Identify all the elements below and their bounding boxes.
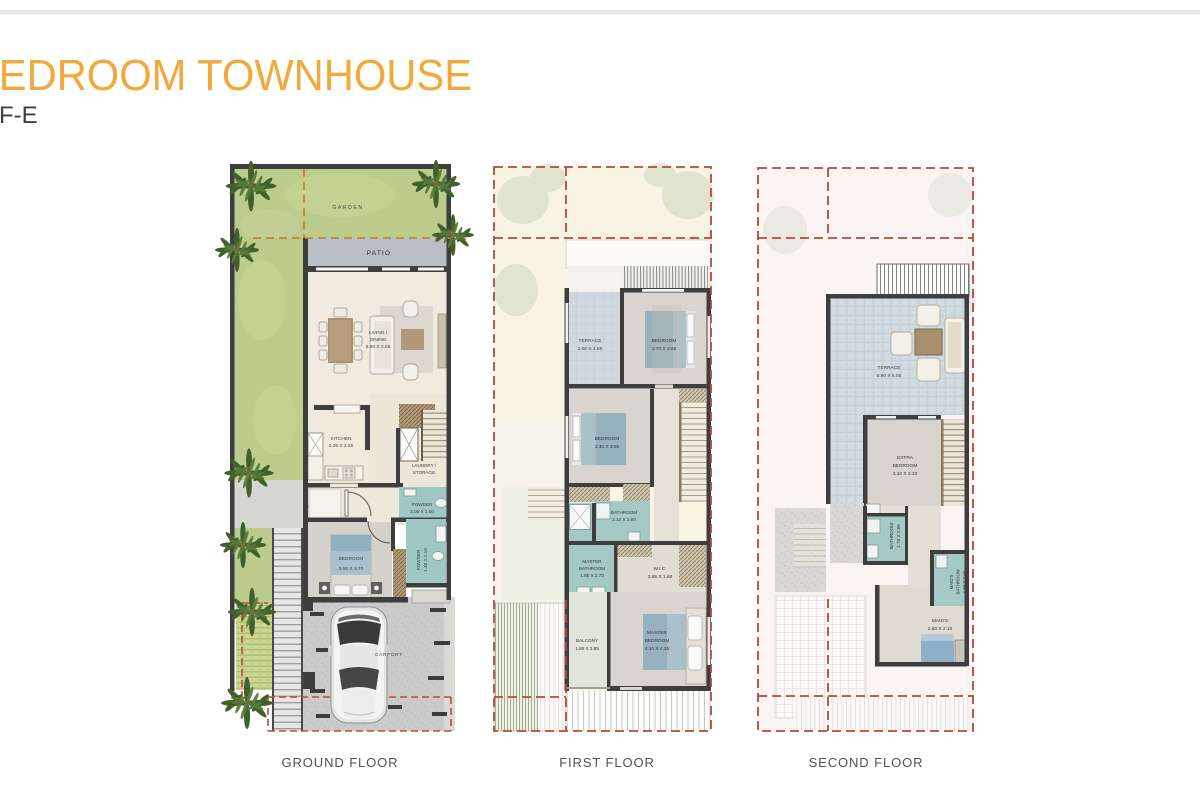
svg-text:BATHROOM: BATHROOM — [956, 569, 961, 594]
svg-text:TERRACE: TERRACE — [579, 338, 602, 344]
svg-text:BALCONY: BALCONY — [576, 638, 598, 643]
svg-text:EXTRA: EXTRA — [897, 455, 914, 461]
svg-text:MASTER: MASTER — [647, 630, 668, 636]
svg-text:STORAGE: STORAGE — [413, 470, 435, 475]
svg-text:4.10 X 4.35: 4.10 X 4.35 — [645, 646, 670, 652]
svg-text:TERRACE: TERRACE — [878, 365, 901, 371]
svg-text:5.90 X 3.55: 5.90 X 3.55 — [366, 344, 391, 350]
svg-text:2.10 X 1.60: 2.10 X 1.60 — [612, 517, 636, 522]
svg-text:GARDEN: GARDEN — [332, 205, 363, 211]
svg-text:BATHROOM: BATHROOM — [889, 523, 894, 549]
svg-text:POWDER: POWDER — [416, 549, 421, 570]
svg-text:LAUNDRY /: LAUNDRY / — [412, 463, 437, 468]
svg-text:1.40 X 2.10: 1.40 X 2.10 — [423, 548, 428, 572]
svg-text:BEDROOM: BEDROOM — [645, 638, 670, 644]
svg-text:2.00 X 4.85: 2.00 X 4.85 — [578, 346, 603, 352]
svg-text:BATHROOM: BATHROOM — [611, 510, 637, 515]
svg-text:MASTER: MASTER — [582, 559, 602, 564]
svg-text:BEDROOM: BEDROOM — [652, 338, 677, 344]
svg-text:BEDROOM: BEDROOM — [893, 463, 918, 469]
svg-text:SECOND FLOOR: SECOND FLOOR — [809, 755, 924, 770]
svg-text:3.70 X 3.65: 3.70 X 3.65 — [652, 346, 677, 352]
svg-text:1.70 X 2.55: 1.70 X 2.55 — [896, 524, 901, 548]
svg-text:5.90 X 5.05: 5.90 X 5.05 — [877, 373, 902, 379]
svg-text:2.05 X 1.50: 2.05 X 1.50 — [410, 509, 434, 514]
svg-text:MAID'S: MAID'S — [949, 575, 954, 590]
svg-text:FIRST FLOOR: FIRST FLOOR — [559, 755, 655, 770]
svg-text:2.60 X 2.10: 2.60 X 2.10 — [928, 626, 953, 632]
svg-text:3.65 X 1.60: 3.65 X 1.60 — [648, 574, 673, 580]
svg-text:W.I.C.: W.I.C. — [653, 566, 666, 572]
svg-text:3.30 X 3.55: 3.30 X 3.55 — [595, 444, 620, 450]
svg-text:GROUND FLOOR: GROUND FLOOR — [282, 755, 399, 770]
svg-text:1.60 X 3.85: 1.60 X 3.85 — [575, 646, 599, 651]
svg-text:CARPORT: CARPORT — [375, 652, 403, 658]
svg-text:1.85 X 2.70: 1.85 X 2.70 — [580, 573, 604, 578]
svg-text:BATHROOM: BATHROOM — [579, 566, 605, 571]
svg-text:POWDER: POWDER — [412, 502, 433, 507]
svg-text:LIVING /: LIVING / — [369, 330, 388, 336]
svg-text:BEDROOM: BEDROOM — [339, 556, 364, 562]
svg-text:PATIO: PATIO — [367, 250, 392, 257]
svg-text:3.10 X 3.20: 3.10 X 3.20 — [893, 471, 918, 477]
svg-text:MAID'S: MAID'S — [932, 618, 948, 624]
svg-text:BEDROOM TOWNHOUSE: BEDROOM TOWNHOUSE — [0, 52, 472, 100]
svg-text:3.50 X 3.70: 3.50 X 3.70 — [339, 566, 364, 572]
svg-text:BEDROOM: BEDROOM — [595, 436, 620, 442]
svg-text:3.35 X 3.25: 3.35 X 3.25 — [329, 443, 354, 449]
svg-text:KITCHEN: KITCHEN — [330, 436, 352, 442]
svg-text:DINING: DINING — [370, 337, 387, 343]
svg-text:THF-E: THF-E — [0, 102, 38, 129]
